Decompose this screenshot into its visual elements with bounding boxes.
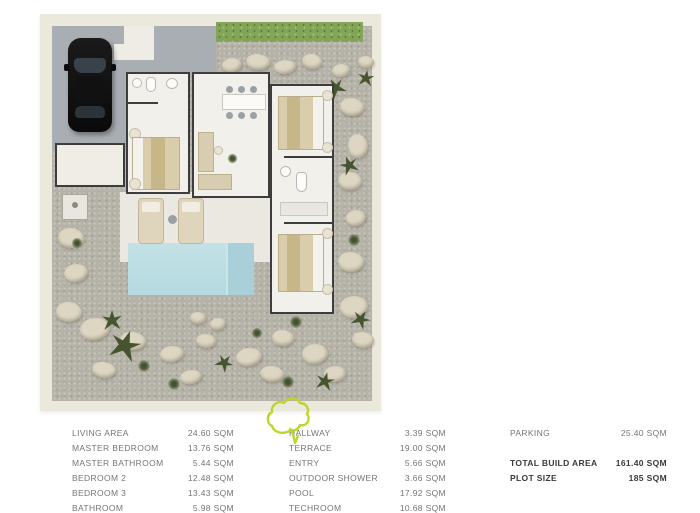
bed-runner bbox=[151, 138, 165, 189]
legend-row: BEDROOM 212.48 SQM bbox=[72, 470, 234, 485]
stool bbox=[226, 112, 233, 119]
bedroom2-bed bbox=[278, 96, 324, 150]
area-value: 19.00 SQM bbox=[400, 443, 446, 453]
legend-column-3: PARKING25.40 SQM TOTAL BUILD AREA161.40 … bbox=[510, 425, 667, 485]
room-label: BATHROOM bbox=[72, 503, 123, 513]
legend-row: PARKING25.40 SQM bbox=[510, 425, 667, 440]
car-roof bbox=[76, 76, 104, 104]
lounger-cushion bbox=[142, 202, 160, 212]
legend-row: HALLWAY3.39 SQM bbox=[289, 425, 446, 440]
room-label: BEDROOM 2 bbox=[72, 473, 126, 483]
area-value: 3.39 SQM bbox=[405, 428, 446, 438]
stool bbox=[226, 86, 233, 93]
car-mirror-right bbox=[111, 64, 116, 71]
area-value: 185 SQM bbox=[629, 473, 667, 483]
entry-step bbox=[114, 44, 128, 60]
legend-row-total: TOTAL BUILD AREA161.40 SQM bbox=[510, 455, 667, 470]
plant bbox=[346, 232, 362, 248]
legend-row: TERRACE19.00 SQM bbox=[289, 440, 446, 455]
legend-row: BATHROOM5.98 SQM bbox=[72, 500, 234, 513]
shower-tray bbox=[280, 202, 328, 216]
car-rear-window bbox=[75, 106, 105, 118]
area-value: 5.98 SQM bbox=[193, 503, 234, 513]
plant bbox=[136, 358, 152, 374]
pillows bbox=[313, 235, 323, 291]
desk bbox=[198, 132, 214, 172]
side-table bbox=[168, 215, 177, 224]
plant bbox=[280, 374, 296, 390]
room-label: BEDROOM 3 bbox=[72, 488, 126, 498]
techroom bbox=[55, 143, 125, 187]
room-label: PLOT SIZE bbox=[510, 473, 557, 483]
area-value: 13.76 SQM bbox=[188, 443, 234, 453]
plant bbox=[250, 326, 264, 340]
kitchen-island bbox=[222, 94, 266, 110]
room-label: MASTER BEDROOM bbox=[72, 443, 159, 453]
legend-row: TECHROOM10.68 SQM bbox=[289, 500, 446, 513]
legend-row: POOL17.92 SQM bbox=[289, 485, 446, 500]
room-label: LIVING AREA bbox=[72, 428, 129, 438]
indoor-plant bbox=[226, 152, 239, 165]
room-label: PARKING bbox=[510, 428, 550, 438]
legend-row-spacer bbox=[510, 440, 667, 455]
sink bbox=[280, 166, 291, 177]
legend-row: LIVING AREA24.60 SQM bbox=[72, 425, 234, 440]
toilet bbox=[146, 77, 156, 92]
legend-row-plot: PLOT SIZE185 SQM bbox=[510, 470, 667, 485]
area-value: 161.40 SQM bbox=[616, 458, 667, 468]
room-label: OUTDOOR SHOWER bbox=[289, 473, 378, 483]
pool-steps bbox=[226, 243, 254, 295]
area-value: 5.44 SQM bbox=[193, 458, 234, 468]
stool bbox=[238, 112, 245, 119]
sink bbox=[166, 78, 178, 89]
stool bbox=[238, 86, 245, 93]
car-top-view bbox=[68, 38, 112, 132]
legend-row: MASTER BATHROOM5.44 SQM bbox=[72, 455, 234, 470]
right-wing bbox=[270, 84, 334, 314]
nightstand bbox=[322, 284, 333, 295]
room-label: TECHROOM bbox=[289, 503, 341, 513]
pillows bbox=[313, 97, 323, 149]
nightstand bbox=[129, 178, 141, 190]
car-mirror-left bbox=[64, 64, 69, 71]
toilet bbox=[296, 172, 307, 192]
room-label: TOTAL BUILD AREA bbox=[510, 458, 597, 468]
area-value: 5.66 SQM bbox=[405, 458, 446, 468]
area-value: 13.43 SQM bbox=[188, 488, 234, 498]
floor-plan-image bbox=[40, 14, 381, 411]
sofa bbox=[198, 174, 232, 190]
legend-row: BEDROOM 313.43 SQM bbox=[72, 485, 234, 500]
area-value: 17.92 SQM bbox=[400, 488, 446, 498]
plant bbox=[166, 376, 182, 392]
area-value: 3.66 SQM bbox=[405, 473, 446, 483]
car-windshield bbox=[74, 58, 106, 73]
chair bbox=[214, 146, 223, 155]
sun-lounger bbox=[138, 198, 164, 244]
living-area bbox=[192, 72, 270, 198]
room-label: MASTER BATHROOM bbox=[72, 458, 164, 468]
nightstand bbox=[322, 142, 333, 153]
room-label: ENTRY bbox=[289, 458, 319, 468]
sink bbox=[132, 78, 142, 88]
nightstand bbox=[322, 90, 333, 101]
area-value: 24.60 SQM bbox=[188, 428, 234, 438]
stool bbox=[250, 86, 257, 93]
stool bbox=[250, 112, 257, 119]
hedge-strip bbox=[216, 22, 363, 42]
plant bbox=[288, 314, 304, 330]
area-value: 10.68 SQM bbox=[400, 503, 446, 513]
master-bedroom bbox=[126, 72, 190, 194]
interior-wall bbox=[284, 156, 332, 158]
legend-row: OUTDOOR SHOWER3.66 SQM bbox=[289, 470, 446, 485]
shower-head-icon bbox=[72, 202, 78, 208]
legend-row: MASTER BEDROOM13.76 SQM bbox=[72, 440, 234, 455]
bed-runner bbox=[287, 235, 300, 291]
entry-walkway bbox=[124, 26, 154, 60]
interior-wall bbox=[284, 222, 332, 224]
nightstand bbox=[322, 228, 333, 239]
bathroom-partition-wall bbox=[128, 102, 158, 104]
legend-column-1: LIVING AREA24.60 SQM MASTER BEDROOM13.76… bbox=[72, 425, 234, 513]
legend-column-2: HALLWAY3.39 SQM TERRACE19.00 SQM ENTRY5.… bbox=[289, 425, 446, 513]
plant bbox=[70, 236, 84, 250]
room-label: POOL bbox=[289, 488, 314, 498]
sun-lounger bbox=[178, 198, 204, 244]
lounger-cushion bbox=[182, 202, 200, 212]
legend-row: ENTRY5.66 SQM bbox=[289, 455, 446, 470]
area-value: 25.40 SQM bbox=[621, 428, 667, 438]
area-value: 12.48 SQM bbox=[188, 473, 234, 483]
room-label: HALLWAY bbox=[289, 428, 331, 438]
bed-runner bbox=[287, 97, 300, 149]
bedroom3-bed bbox=[278, 234, 324, 292]
room-label: TERRACE bbox=[289, 443, 332, 453]
page: LIVING AREA24.60 SQM MASTER BEDROOM13.76… bbox=[0, 0, 700, 513]
